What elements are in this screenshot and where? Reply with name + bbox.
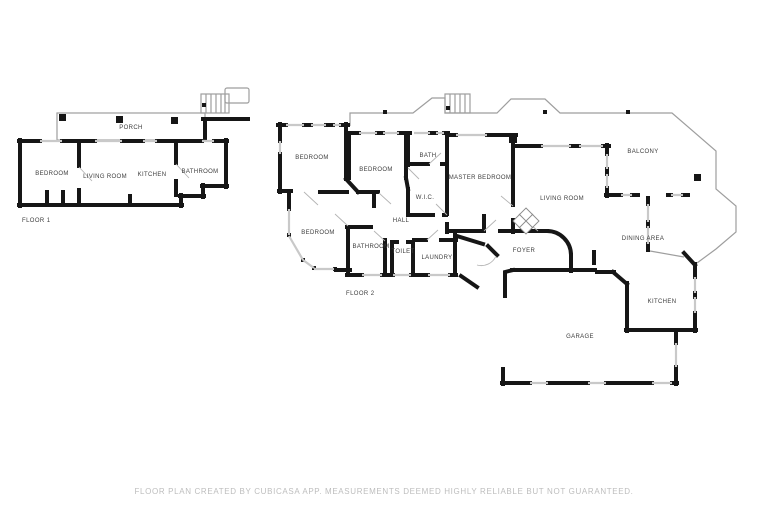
room-label-f2-toilet: TOILET xyxy=(392,249,415,255)
floor1-plan xyxy=(19,88,249,206)
room-label-f2-bedroom-middle: BEDROOM xyxy=(359,167,392,173)
floor2-plan xyxy=(278,94,736,384)
room-label-f2-wic: W.I.C. xyxy=(416,195,434,201)
room-label-f2-balcony: BALCONY xyxy=(627,149,658,155)
room-label-f1-kitchen: KITCHEN xyxy=(138,172,167,178)
floor2-walls xyxy=(278,124,696,384)
room-label-f2-dining-area: DINING AREA xyxy=(622,236,665,242)
room-label-f2-bath: BATH xyxy=(420,153,437,159)
disclaimer-text: FLOOR PLAN CREATED BY CUBICASA APP. MEAS… xyxy=(134,488,633,496)
room-label-f2-bedroom-lower: BEDROOM xyxy=(301,230,334,236)
room-label-f2-master-bedroom: MASTER BEDROOM xyxy=(449,175,512,181)
room-label-f1-bedroom: BEDROOM xyxy=(35,171,68,177)
room-label-f2-laundry: LAUNDRY xyxy=(421,255,452,261)
room-label-f2-bedroom-upper: BEDROOM xyxy=(295,155,328,161)
floor1-porch-outline xyxy=(57,88,249,140)
floor1-label: FLOOR 1 xyxy=(22,218,50,224)
room-label-porch: PORCH xyxy=(119,125,142,131)
floor2-windows xyxy=(280,125,695,383)
floor2-label: FLOOR 2 xyxy=(346,291,374,297)
floor2-doors xyxy=(304,153,538,266)
room-label-f1-living-room: LIVING ROOM xyxy=(83,174,127,180)
room-label-f2-foyer: FOYER xyxy=(513,248,535,254)
floor1-walls xyxy=(19,119,248,206)
room-label-f2-bathroom: BATHROOM xyxy=(352,244,389,250)
room-label-f2-kitchen: KITCHEN xyxy=(648,299,677,305)
floorplan-graphic xyxy=(0,0,768,512)
floor-plan-canvas: PORCH BEDROOM LIVING ROOM KITCHEN BATHRO… xyxy=(0,0,768,512)
room-label-f2-garage: GARAGE xyxy=(566,334,594,340)
room-label-f2-living-room: LIVING ROOM xyxy=(540,196,584,202)
room-label-f1-bathroom: BATHROOM xyxy=(181,169,218,175)
room-label-f2-hall: HALL xyxy=(393,218,409,224)
